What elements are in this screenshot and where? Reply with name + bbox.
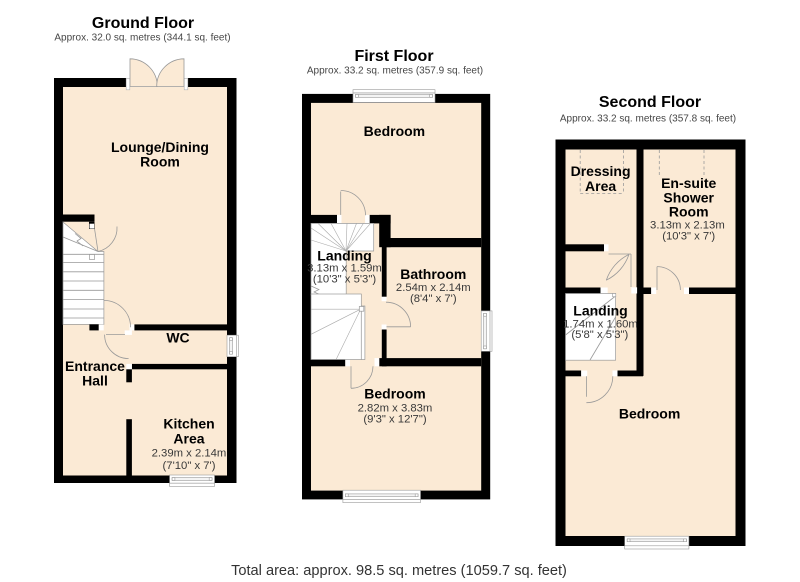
svg-text:Hall: Hall — [82, 373, 108, 389]
svg-text:(10'3" x 7'): (10'3" x 7') — [662, 231, 715, 243]
svg-text:Area: Area — [173, 431, 204, 447]
svg-text:(10'3" x 5'3"): (10'3" x 5'3") — [313, 274, 376, 286]
svg-text:Ground Floor: Ground Floor — [92, 15, 194, 32]
svg-text:Kitchen: Kitchen — [163, 416, 214, 432]
svg-text:Room: Room — [669, 204, 709, 220]
svg-text:Approx. 32.0 sq. metres (344.1: Approx. 32.0 sq. metres (344.1 sq. feet) — [54, 33, 230, 44]
svg-text:Bathroom: Bathroom — [400, 266, 466, 282]
svg-text:WC: WC — [166, 330, 189, 346]
svg-text:(9'3" x 12'7"): (9'3" x 12'7") — [363, 414, 426, 426]
svg-text:Second Floor: Second Floor — [599, 94, 701, 111]
svg-text:Approx. 33.2 sq. metres (357.8: Approx. 33.2 sq. metres (357.8 sq. feet) — [560, 114, 736, 125]
svg-text:(8'4" x 7'): (8'4" x 7') — [410, 293, 457, 305]
svg-text:Landing: Landing — [317, 248, 371, 264]
svg-text:Bedroom: Bedroom — [364, 123, 425, 139]
svg-text:Landing: Landing — [573, 302, 627, 318]
svg-text:Room: Room — [140, 154, 180, 170]
svg-text:(7'10" x 7'): (7'10" x 7') — [163, 460, 216, 472]
svg-text:Bedroom: Bedroom — [364, 386, 425, 402]
svg-text:Area: Area — [585, 178, 616, 194]
svg-text:(5'8" x 5'3"): (5'8" x 5'3") — [571, 329, 628, 341]
svg-text:Bedroom: Bedroom — [619, 406, 680, 422]
svg-text:Total area: approx. 98.5 sq. m: Total area: approx. 98.5 sq. metres (105… — [231, 563, 567, 579]
svg-text:2.39m x 2.14m: 2.39m x 2.14m — [152, 448, 227, 460]
svg-text:Approx. 33.2 sq. metres (357.9: Approx. 33.2 sq. metres (357.9 sq. feet) — [307, 66, 483, 77]
svg-text:First Floor: First Floor — [354, 48, 433, 65]
svg-text:Dressing: Dressing — [571, 163, 631, 179]
